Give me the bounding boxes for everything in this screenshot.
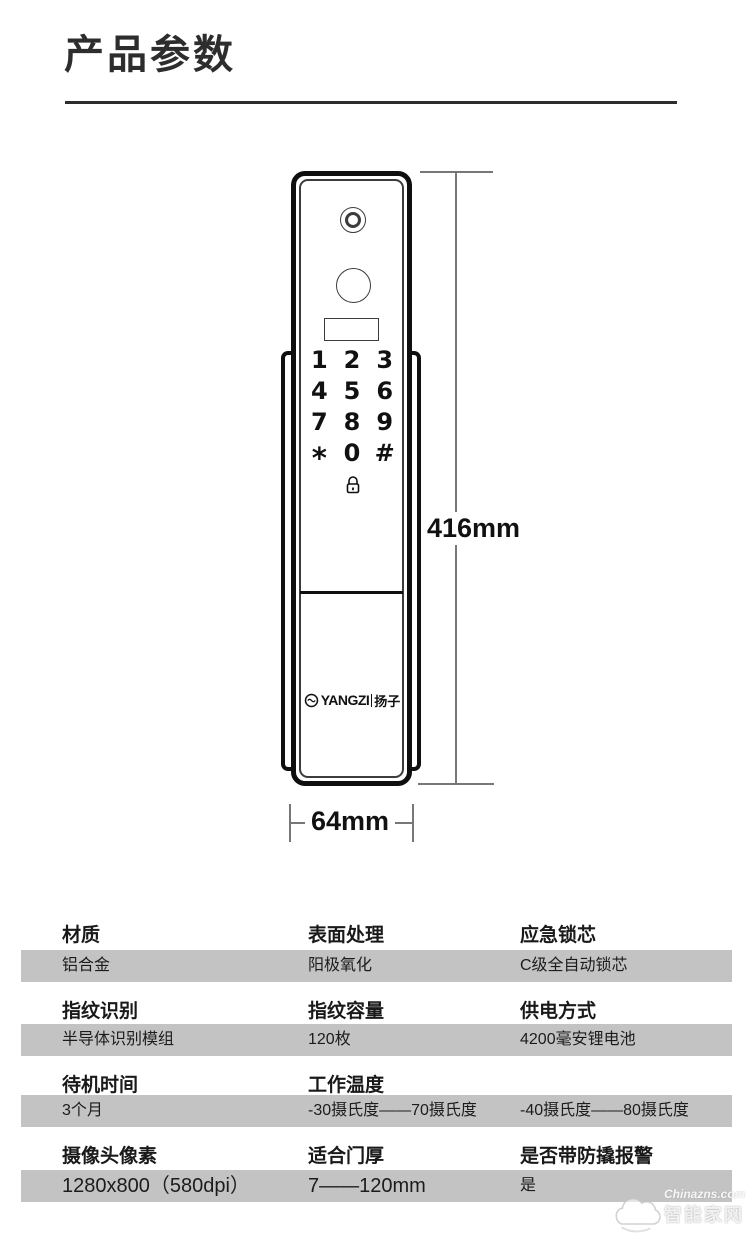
fingerprint-sensor-icon	[336, 268, 371, 303]
spec-header: 应急锁芯	[520, 920, 596, 947]
panel-divider-line	[300, 591, 403, 594]
keypad-key-2: 2	[336, 345, 369, 376]
title-underline	[65, 101, 677, 104]
spec-header: 工作温度	[308, 1070, 384, 1097]
spec-value: 铝合金	[62, 950, 110, 982]
spec-header: 是否带防撬报警	[520, 1141, 653, 1168]
spec-value: 3个月	[62, 1095, 103, 1127]
spec-header: 指纹容量	[308, 996, 384, 1023]
brand-circle-icon	[304, 693, 319, 708]
lock-icon	[344, 475, 362, 500]
spec-value: 是	[520, 1170, 536, 1202]
page-title: 产品参数	[64, 22, 236, 80]
keypad-key-9: 9	[368, 407, 401, 438]
watermark-name-text: 智能家网	[664, 1201, 744, 1227]
camera-lens-inner-icon	[345, 212, 361, 228]
keypad-key-7: 7	[303, 407, 336, 438]
spec-value-row: 半导体识别模组 120枚 4200毫安锂电池	[0, 1024, 750, 1056]
site-watermark: Chinazns.com 智能家网	[608, 1182, 748, 1244]
keypad-key-3: 3	[368, 345, 401, 376]
display-window	[324, 318, 379, 341]
keypad-key-5: 5	[336, 376, 369, 407]
keypad: 1 2 3 4 5 6 7 8 9 * 0 #	[303, 345, 401, 469]
spec-value: 7——120mm	[308, 1170, 426, 1202]
spec-header: 指纹识别	[62, 996, 138, 1023]
spec-value-row: 铝合金 阳极氧化 C级全自动锁芯	[0, 950, 750, 982]
height-dimension-tick-bottom	[418, 783, 494, 785]
keypad-key-4: 4	[303, 376, 336, 407]
spec-value: 1280x800（580dpi）	[62, 1170, 250, 1202]
spec-value: 阳极氧化	[308, 950, 372, 982]
brand-name-en: YANGZI	[321, 692, 370, 708]
keypad-key-6: 6	[368, 376, 401, 407]
keypad-key-star: *	[303, 438, 336, 469]
spec-value: 120枚	[308, 1024, 351, 1056]
spec-value: -40摄氏度——80摄氏度	[520, 1095, 689, 1127]
height-dimension-line	[455, 172, 457, 784]
keypad-key-8: 8	[336, 407, 369, 438]
keypad-key-hash: #	[368, 438, 401, 469]
spec-value: 半导体识别模组	[62, 1024, 174, 1056]
spec-value: C级全自动锁芯	[520, 950, 628, 982]
brand-separator	[371, 694, 372, 707]
spec-value-row: 3个月 -30摄氏度——70摄氏度 -40摄氏度——80摄氏度	[0, 1095, 750, 1127]
brand-logo: YANGZI 扬子	[300, 690, 404, 710]
watermark-site-text: Chinazns.com	[664, 1187, 745, 1201]
spec-value: 4200毫安锂电池	[520, 1024, 636, 1056]
cloud-icon	[608, 1184, 664, 1241]
spec-header: 待机时间	[62, 1070, 138, 1097]
spec-header: 适合门厚	[308, 1141, 384, 1168]
width-dimension-label: 64mm	[305, 806, 395, 837]
spec-header: 供电方式	[520, 996, 596, 1023]
height-dimension-label: 416mm	[424, 512, 523, 545]
spec-header: 材质	[62, 920, 100, 947]
spec-header: 表面处理	[308, 920, 384, 947]
brand-name-cn: 扬子	[374, 691, 400, 710]
spec-value: -30摄氏度——70摄氏度	[308, 1095, 477, 1127]
keypad-key-1: 1	[303, 345, 336, 376]
spec-header: 摄像头像素	[62, 1141, 157, 1168]
keypad-key-0: 0	[336, 438, 369, 469]
height-dimension-tick-top	[420, 171, 493, 173]
